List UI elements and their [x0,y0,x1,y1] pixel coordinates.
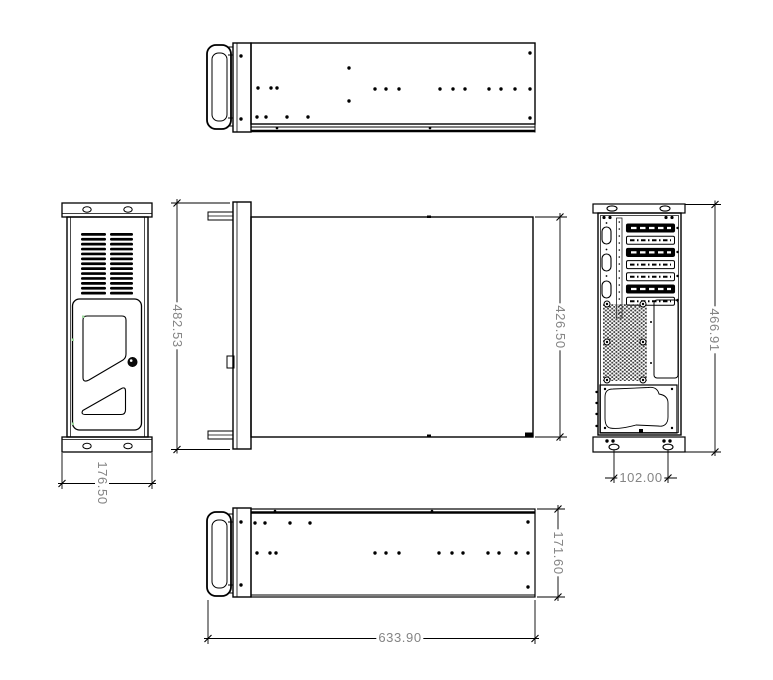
front-panel [67,217,148,437]
dimension-label-side-panel-height: 171.60 [551,529,565,576]
rear-view [593,204,685,452]
dimension-label-plan-overall-width: 482.53 [170,302,184,349]
blank-plate [654,300,678,378]
screw-strip [617,218,623,318]
psu-bay [600,385,677,433]
screw-holes [239,510,529,589]
dimension-lines [58,199,721,644]
chassis-body [251,43,535,124]
vent-louvers [81,233,133,295]
screw-holes [239,51,531,129]
expansion-slots [627,224,675,305]
dimension-label-side-panel-length: 633.90 [376,631,423,645]
chassis-cover [251,217,533,437]
psu-cutout [605,387,668,428]
dimension-label-front-panel-height: 176.50 [95,459,109,506]
top-flange [62,203,152,217]
dimension-label-rear-overall-height: 466.91 [707,306,721,353]
io-cutouts [602,227,611,298]
dimension-label-plan-body-width: 426.50 [553,303,567,350]
rack-ear-bottom [208,431,233,439]
front-view [62,203,152,452]
dimension-label-rear-foot-spacing: 102.00 [617,471,664,485]
rack-ear-top [208,212,233,220]
door-window-upper [83,316,126,381]
technical-drawing-canvas: 482.53 426.50 176.50 466.91 102.00 171.6… [0,0,773,680]
bottom-side-view [207,508,535,597]
front-panel-edge [233,202,251,449]
top-side-view [207,43,535,133]
door-window-lower [82,388,125,415]
lock-icon [128,357,137,366]
drawing-linework [0,0,773,680]
chassis-body [251,509,535,597]
plan-view [208,202,533,449]
